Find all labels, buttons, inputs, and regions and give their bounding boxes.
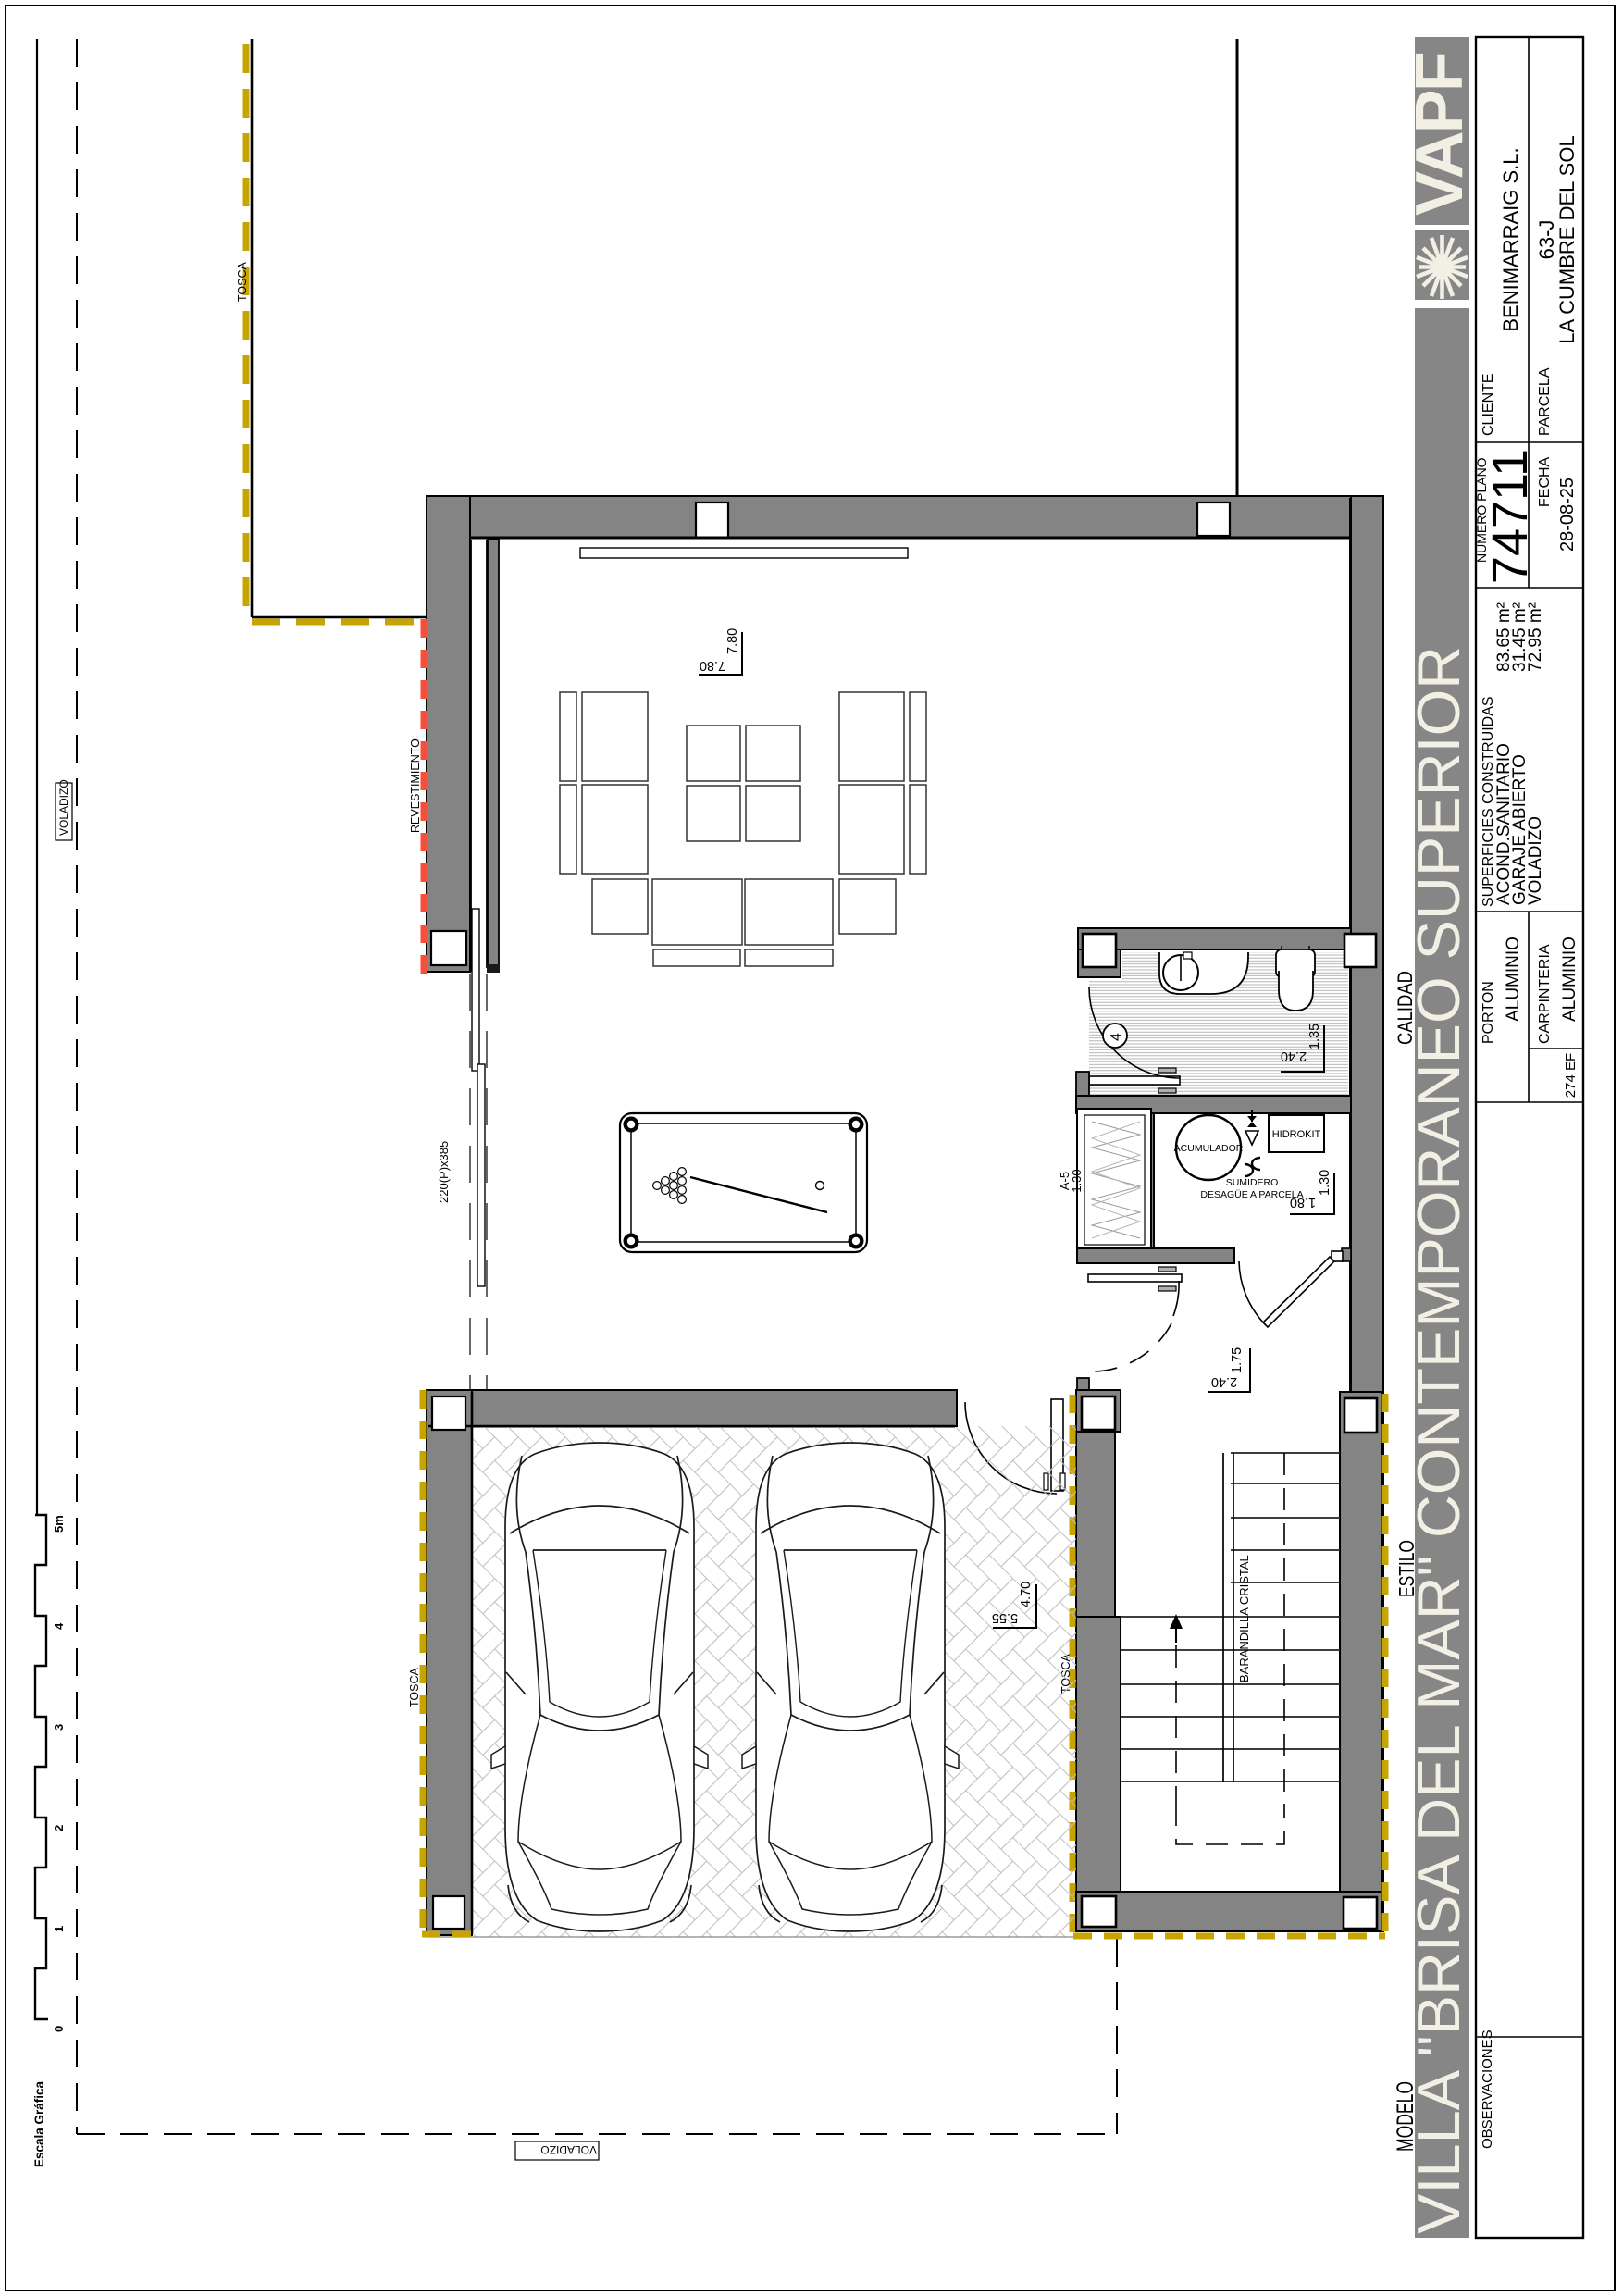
svg-text:5m: 5m [52,1515,66,1533]
svg-text:ALUMINIO: ALUMINIO [1504,937,1523,1022]
svg-text:2: 2 [52,1825,66,1831]
svg-text:3: 3 [52,1724,66,1731]
svg-text:74711: 74711 [1482,449,1538,584]
svg-text:PORTON: PORTON [1481,981,1496,1044]
svg-text:CLIENTE: CLIENTE [1481,373,1496,436]
svg-text:FECHA: FECHA [1537,456,1553,507]
svg-text:PARCELA: PARCELA [1537,367,1553,436]
svg-text:REVESTIMIENTO: REVESTIMIENTO [409,738,422,833]
svg-text:5.55: 5.55 [992,1610,1018,1625]
svg-text:1.80: 1.80 [1290,1195,1316,1210]
svg-text:ACUMULADOR: ACUMULADOR [1174,1143,1244,1154]
svg-text:BARANDILLA CRISTAL: BARANDILLA CRISTAL [1237,1555,1251,1682]
svg-text:4.70: 4.70 [1019,1582,1034,1607]
svg-text:CARPINTERIA: CARPINTERIA [1537,944,1553,1044]
svg-text:Escala Gráfica: Escala Gráfica [32,2080,46,2167]
svg-text:274 EF: 274 EF [1563,1053,1579,1098]
svg-text:2.40: 2.40 [1211,1374,1237,1389]
svg-text:TOSCA: TOSCA [408,1668,421,1707]
svg-text:1.30: 1.30 [1070,1169,1084,1192]
svg-text:1.75: 1.75 [1230,1347,1245,1373]
svg-text:BENIMARRAIG S.L.: BENIMARRAIG S.L. [1499,147,1522,331]
svg-text:1.35: 1.35 [1307,1024,1322,1049]
svg-text:OBSERVACIONES: OBSERVACIONES [1480,2029,1495,2149]
svg-text:220(P)x385: 220(P)x385 [437,1141,451,1203]
svg-text:VOLADIZO: VOLADIZO [57,779,70,836]
svg-text:DESAGÜE A PARCELA: DESAGÜE A PARCELA [1200,1189,1303,1200]
svg-text:VAPF: VAPF [1403,53,1477,216]
svg-text:LA CUMBRE DEL SOL: LA CUMBRE DEL SOL [1555,135,1579,343]
svg-text:CALIDAD: CALIDAD [1394,971,1417,1045]
svg-text:72.95 m²: 72.95 m² [1526,602,1545,672]
svg-text:4: 4 [1109,1033,1124,1041]
svg-text:0: 0 [52,2026,66,2032]
svg-text:MODELO: MODELO [1393,2081,1419,2152]
svg-text:2.40: 2.40 [1281,1049,1307,1063]
svg-text:1.30: 1.30 [1318,1170,1332,1196]
svg-text:ALUMINIO: ALUMINIO [1560,937,1580,1022]
svg-text:ESTILO: ESTILO [1394,1540,1419,1597]
svg-text:HIDROKIT: HIDROKIT [1272,1129,1321,1140]
svg-text:1: 1 [52,1926,66,1932]
svg-text:7.80: 7.80 [725,628,740,654]
svg-text:TOSCA: TOSCA [236,262,249,302]
svg-text:4: 4 [52,1622,66,1630]
svg-text:7.80: 7.80 [700,658,725,673]
svg-text:VOLADIZO: VOLADIZO [540,2143,597,2156]
svg-text:28-08-25: 28-08-25 [1557,478,1578,552]
svg-text:VOLADIZO: VOLADIZO [1526,816,1545,905]
svg-text:VILLA "BRISA DEL MAR" CONTEMP: VILLA "BRISA DEL MAR" CONTEMPORANEO SUPE… [1405,646,1472,2234]
svg-text:SUMIDERO: SUMIDERO [1226,1177,1279,1188]
